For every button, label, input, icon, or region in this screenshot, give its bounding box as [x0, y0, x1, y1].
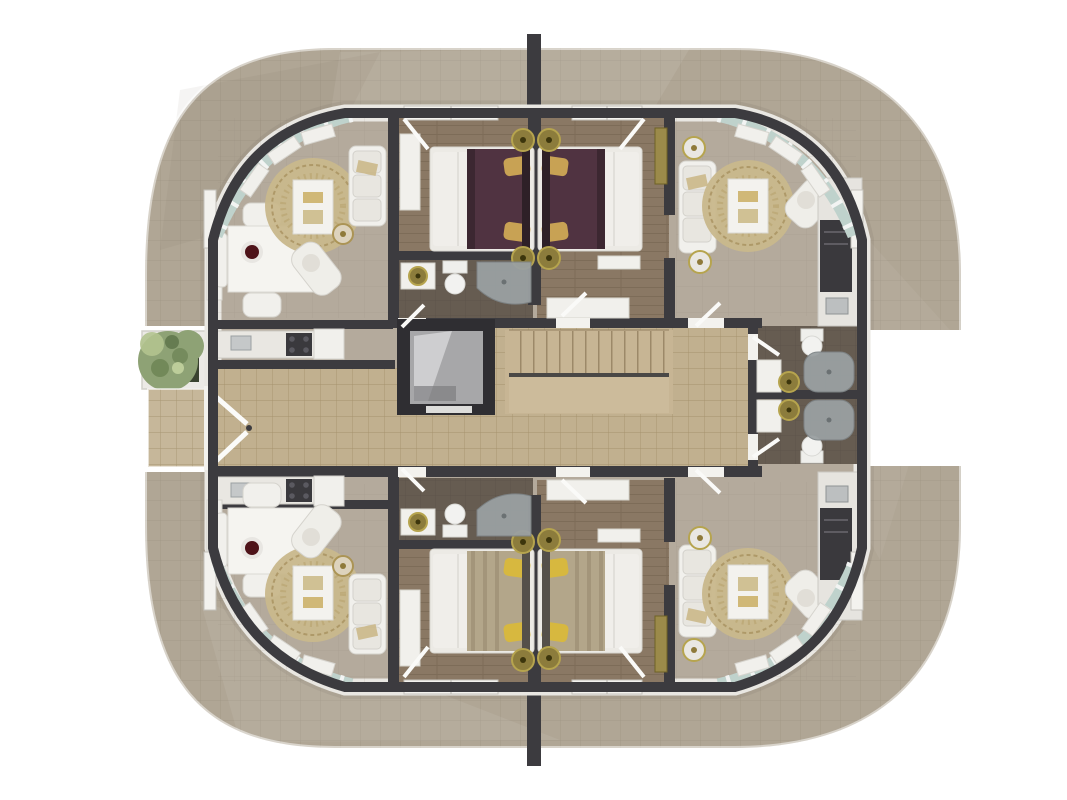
shower-drain	[502, 280, 507, 285]
bed-cover-shade	[467, 149, 475, 249]
sofa-cushion	[683, 550, 711, 574]
wall-bedroom-tl-left	[388, 113, 399, 323]
cover-stripe	[483, 551, 487, 651]
cooktop	[286, 479, 312, 502]
toilet-tank	[443, 261, 467, 273]
staircase-landing	[509, 377, 669, 413]
nightstand-center	[546, 537, 552, 543]
bath-sink-drain	[416, 274, 421, 279]
coffee-table	[293, 566, 333, 620]
cover-stripe	[495, 551, 499, 651]
floor-plan-canvas	[0, 0, 1067, 800]
coffee-table	[293, 180, 333, 234]
headboard	[522, 145, 530, 253]
sofa-cushion	[353, 603, 381, 625]
shrub-shade	[172, 348, 188, 364]
closet-top	[547, 298, 629, 318]
cover-stripe	[599, 551, 603, 651]
fridge	[314, 329, 344, 359]
shrub-shade	[165, 335, 179, 349]
wall-corridor-bottom	[213, 466, 762, 477]
side-table-center	[340, 563, 346, 569]
side-table-center	[340, 231, 346, 237]
kitchen-sink	[231, 336, 251, 350]
burner	[289, 482, 295, 488]
staircase-treads	[509, 331, 669, 377]
fridge	[314, 476, 344, 506]
burner	[289, 336, 295, 342]
cover-stripe	[471, 551, 475, 651]
elevator-floor-shade	[414, 386, 456, 401]
foot-bench	[598, 529, 640, 542]
shrub-light	[172, 362, 184, 374]
door-opening	[556, 318, 590, 328]
door-opening	[688, 467, 724, 477]
dining-chair	[243, 293, 281, 317]
shrub-shade	[151, 359, 169, 377]
bath-sink-drain	[787, 380, 792, 385]
dining-chair	[243, 483, 281, 507]
side-table-center	[691, 647, 697, 653]
terrace-divider-wall-bottom	[527, 684, 541, 766]
wall-bedroom-tr-right-b	[664, 258, 675, 322]
table-bowl	[245, 541, 259, 555]
kitchen-sink	[826, 486, 848, 502]
coffee-table-decor	[738, 596, 758, 607]
door-opening	[556, 467, 590, 477]
burner	[303, 336, 309, 342]
wall-bedroom-br-right-b	[664, 478, 675, 542]
bath-sink-drain	[416, 520, 421, 525]
door-opening	[688, 318, 724, 328]
bath-sink-drain	[787, 408, 792, 413]
burner	[303, 493, 309, 499]
kitchen-sink	[826, 298, 848, 314]
headboard	[542, 547, 550, 655]
wardrobe	[400, 134, 420, 210]
toilet-bowl	[445, 274, 465, 294]
coffee-table	[728, 179, 768, 233]
entry-walkway-grid	[148, 389, 208, 467]
armchair-cushion	[797, 191, 815, 209]
nightstand-center	[546, 137, 552, 143]
nightstand-center	[520, 255, 526, 261]
nightstand-center	[546, 255, 552, 261]
entry-door-knob	[246, 425, 252, 431]
terrace-gap-right	[868, 330, 1008, 466]
nightstand-center	[520, 137, 526, 143]
toilet-bowl	[445, 504, 465, 524]
shower-drain	[827, 370, 832, 375]
sofa-cushion	[353, 175, 381, 197]
console-table	[655, 616, 667, 672]
headboard	[542, 145, 550, 253]
chaise-cushion	[302, 254, 320, 272]
cover-stripe	[587, 551, 591, 651]
sofa-cushion	[353, 199, 381, 221]
staircase-railing	[509, 373, 669, 377]
sofa-cushion	[353, 579, 381, 601]
table-bowl	[245, 245, 259, 259]
wall-bedroom-bl-left	[388, 477, 399, 687]
coffee-table-decor	[303, 597, 323, 608]
coffee-table-decor	[303, 576, 323, 590]
side-table-center	[691, 145, 697, 151]
headboard	[522, 547, 530, 655]
wall-corridor-arm-top	[213, 360, 395, 369]
elevator-stairs-layer	[397, 319, 673, 415]
burner	[289, 493, 295, 499]
coffee-table-decor	[738, 191, 758, 202]
cooktop	[286, 333, 312, 356]
shower-drain	[827, 418, 832, 423]
bath-vanity	[757, 400, 781, 432]
bed-cover-shade	[597, 149, 605, 249]
side-table-center	[697, 259, 703, 265]
side-table-center	[697, 535, 703, 541]
coffee-table-decor	[303, 210, 323, 224]
burner	[303, 347, 309, 353]
terrace-divider-wall-top	[527, 34, 541, 116]
shower-drain	[502, 514, 507, 519]
chaise-cushion	[302, 528, 320, 546]
closet-bottom	[547, 480, 629, 500]
nightstand-center	[520, 657, 526, 663]
nightstand-center	[520, 539, 526, 545]
floor-plan-rendering	[0, 0, 1067, 800]
nightstand-center	[546, 655, 552, 661]
armchair-cushion	[797, 589, 815, 607]
wall-kitchenette-tl	[213, 320, 393, 329]
shrub	[140, 332, 164, 356]
cover-stripe	[575, 551, 579, 651]
bath-vanity	[757, 360, 781, 392]
coffee-table	[728, 565, 768, 619]
coffee-table-decor	[738, 577, 758, 591]
console-table	[655, 128, 667, 184]
burner	[289, 347, 295, 353]
burner	[303, 482, 309, 488]
coffee-table-decor	[303, 192, 323, 203]
elevator-door	[426, 406, 472, 413]
wardrobe	[400, 590, 420, 666]
foot-bench	[598, 256, 640, 269]
toilet-tank	[443, 525, 467, 537]
coffee-table-decor	[738, 209, 758, 223]
